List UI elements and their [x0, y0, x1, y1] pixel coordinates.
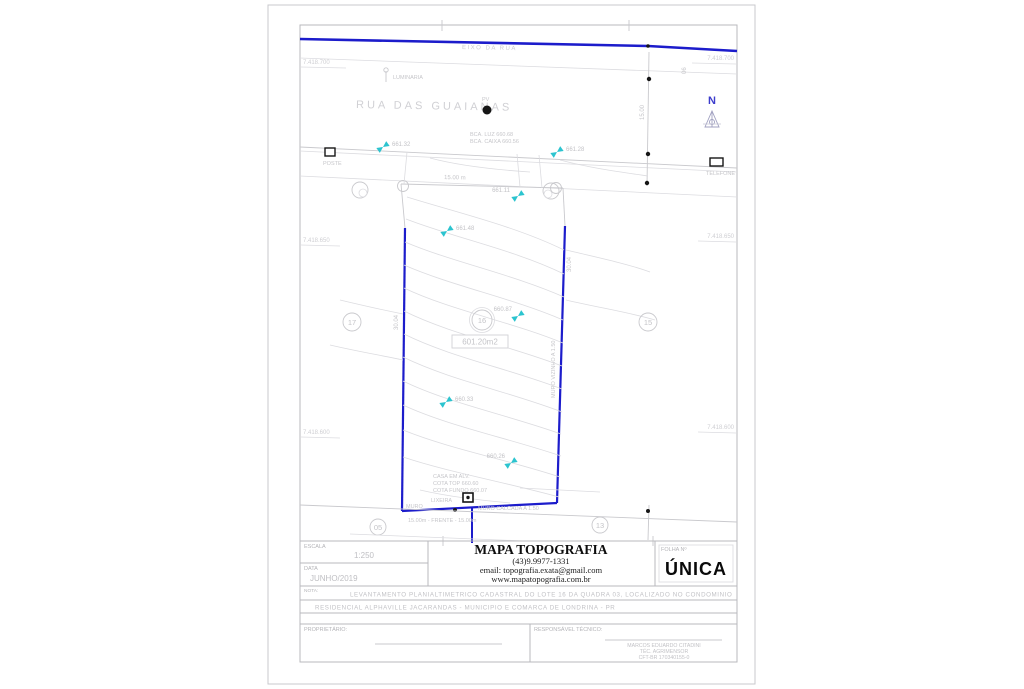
- pole-icon: [325, 148, 335, 156]
- left-side-dim-label: 30.04: [394, 314, 400, 330]
- grid-label: 7.418.700: [303, 60, 330, 66]
- utility-label-2: BCA. CAIXA 660.56: [470, 139, 519, 145]
- corner-lot-number: 06: [682, 67, 688, 74]
- sheet-label: FOLHA Nº: [661, 546, 687, 553]
- note-line-1: LEVANTAMENTO PLANIALTIMETRICO CADASTRAL …: [350, 592, 732, 599]
- house-label-3: COTA FUNDO 660.07: [433, 488, 487, 494]
- tech-role: TÉC. AGRIMENSOR: [640, 648, 689, 655]
- grid-label: 7.418.600: [303, 430, 330, 436]
- date-label: DATA: [304, 566, 318, 572]
- date-value: JUNHO/2019: [310, 574, 358, 583]
- grid-label: 7.418.600: [707, 425, 734, 431]
- elevation-label: 661.48: [456, 226, 475, 232]
- bin-label: LIXEIRA: [431, 498, 452, 504]
- lot-number-back-right: 13: [596, 521, 604, 530]
- elevation-label: 660.87: [494, 307, 513, 313]
- manhole-icon: [483, 106, 492, 115]
- tech-reg: CFT-BR 170340155-0: [639, 655, 690, 661]
- pole-label: POSTE: [323, 161, 342, 167]
- elevation-label: 660.33: [455, 397, 474, 403]
- utility-label-1: BCA. LUZ 660.68: [470, 132, 513, 138]
- sheet-value: ÚNICA: [665, 558, 727, 579]
- elevation-label: 661.28: [566, 147, 585, 153]
- survey-map-page: 7.418.700 7.418.700 7.418.650 7.418.650 …: [0, 0, 1024, 689]
- grid-label: 7.418.700: [707, 56, 734, 62]
- elevation-label: 661.11: [492, 188, 511, 194]
- elevation-label: 661.32: [392, 142, 411, 148]
- telephone-box-icon: [710, 158, 723, 166]
- frontage-dim-label: 15.00 m: [444, 175, 466, 182]
- road-axis-label: EIXO DA RUA: [462, 45, 517, 52]
- lot-area-label: 601.20m2: [462, 338, 498, 347]
- scale-label: ESCALA: [304, 544, 326, 550]
- house-label-1: CASA EM ALV.: [433, 474, 470, 480]
- scale-value: 1:250: [354, 551, 375, 560]
- lot-number-right: 15: [644, 318, 652, 327]
- grid-label: 7.418.650: [707, 234, 734, 240]
- measure-dim-label: 15.00: [640, 104, 646, 120]
- wall-note-label: MURO CALCADA A 1.50: [478, 506, 539, 512]
- telephone-box-label: TELEFONE: [706, 171, 735, 177]
- lot-number-center: 16: [478, 316, 486, 325]
- survey-node: [646, 44, 650, 48]
- company-site: www.mapatopografia.com.br: [491, 574, 590, 584]
- right-side-dim-label: 30.04: [567, 256, 573, 272]
- manhole-label: PV: [482, 97, 490, 103]
- lot-number-back-left: 05: [374, 523, 382, 532]
- north-label: N: [708, 95, 716, 107]
- lot-number-left: 17: [348, 318, 356, 327]
- grid-label: 7.418.650: [303, 238, 330, 244]
- street-lamp-label: LUMINARIA: [393, 75, 423, 81]
- company-name: MAPA TOPOGRAFIA: [474, 542, 607, 557]
- right-side-note-label: MURO VIZINHO A 1.50: [551, 341, 557, 398]
- note-line-2: RESIDENCIAL ALPHAVILLE JACARANDAS - MUNI…: [315, 605, 615, 612]
- elevation-label: 660.26: [487, 454, 506, 460]
- note-label: NOTA:: [304, 588, 318, 594]
- tech-label: RESPONSÁVEL TÉCNICO:: [534, 626, 603, 633]
- owner-label: PROPRIETÁRIO:: [304, 626, 348, 633]
- house-label-2: COTA TOP 660.60: [433, 481, 478, 487]
- survey-drawing: 7.418.700 7.418.700 7.418.650 7.418.650 …: [0, 0, 1024, 689]
- front-note-label: 15.00m - FRENTE - 15.00m: [408, 518, 477, 524]
